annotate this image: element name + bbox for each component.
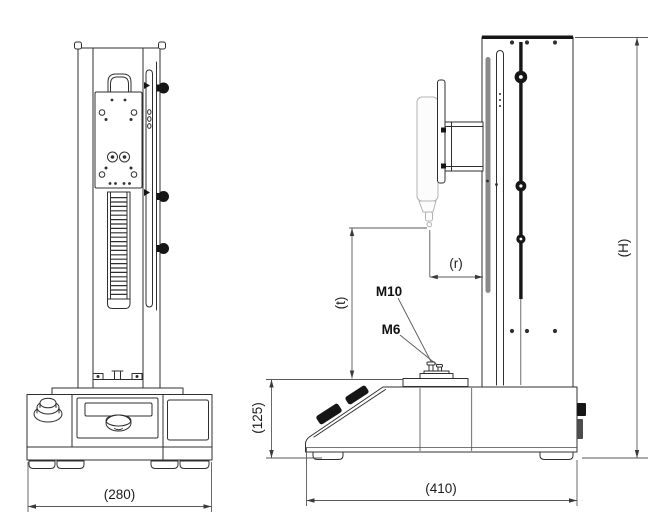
clamp-knob-middle <box>157 191 170 202</box>
thread-adapter <box>427 362 443 371</box>
column-cap-right <box>159 42 166 49</box>
display-window <box>85 403 152 416</box>
thread-label-m10: M10 <box>376 284 402 299</box>
technical-drawing-page: (280) (410) (125) (t) <box>0 0 672 528</box>
column-foot-fittings <box>93 371 142 380</box>
thread-label-m6: M6 <box>382 322 401 337</box>
front-feet <box>29 461 209 469</box>
dim-front-width: (280) <box>28 462 212 512</box>
carriage-handle <box>108 74 131 93</box>
force-gauge <box>417 97 438 227</box>
test-stand-drawing: (280) (410) (125) (t) <box>0 0 672 528</box>
dim-label-410: (410) <box>425 481 457 496</box>
speed-knob[interactable] <box>106 415 131 431</box>
dim-label-H: (H) <box>616 239 631 258</box>
column-cap-left <box>75 42 82 49</box>
rear-connector <box>577 403 586 416</box>
clamp-knob-bottom <box>157 243 170 254</box>
rack-bottom-cap <box>108 299 131 309</box>
dim-label-125: (125) <box>250 402 265 434</box>
clamp-knob-top <box>157 83 170 94</box>
carriage-plate <box>95 92 142 188</box>
front-view <box>27 42 212 469</box>
column-top-edge <box>482 36 573 40</box>
front-side-rail <box>144 62 169 310</box>
dim-height-H: (H) <box>575 38 648 459</box>
m10-leader <box>398 298 432 363</box>
gauge-hook <box>427 222 432 227</box>
front-base <box>27 388 212 460</box>
rear-socket <box>577 419 583 439</box>
sample-table <box>398 298 468 387</box>
rail-wedge-mid <box>144 189 150 196</box>
dim-stroke-t: (t) <box>333 228 427 379</box>
dim-label-280: (280) <box>104 487 136 502</box>
dim-side-depth: (410) <box>307 448 578 506</box>
rail-wedge-top <box>144 82 150 89</box>
side-column <box>482 36 573 388</box>
guide-rail <box>486 57 491 293</box>
dim-label-r: (r) <box>449 256 463 271</box>
side-foot-rear <box>540 452 573 460</box>
side-view <box>306 36 587 460</box>
side-base <box>306 385 587 460</box>
base-top-plate <box>52 388 183 395</box>
rack-strip <box>108 192 131 309</box>
side-access-panel <box>168 400 209 440</box>
dim-label-t: (t) <box>333 297 348 310</box>
control-panel <box>77 398 158 438</box>
dim-throat-r: (r) <box>430 230 483 279</box>
